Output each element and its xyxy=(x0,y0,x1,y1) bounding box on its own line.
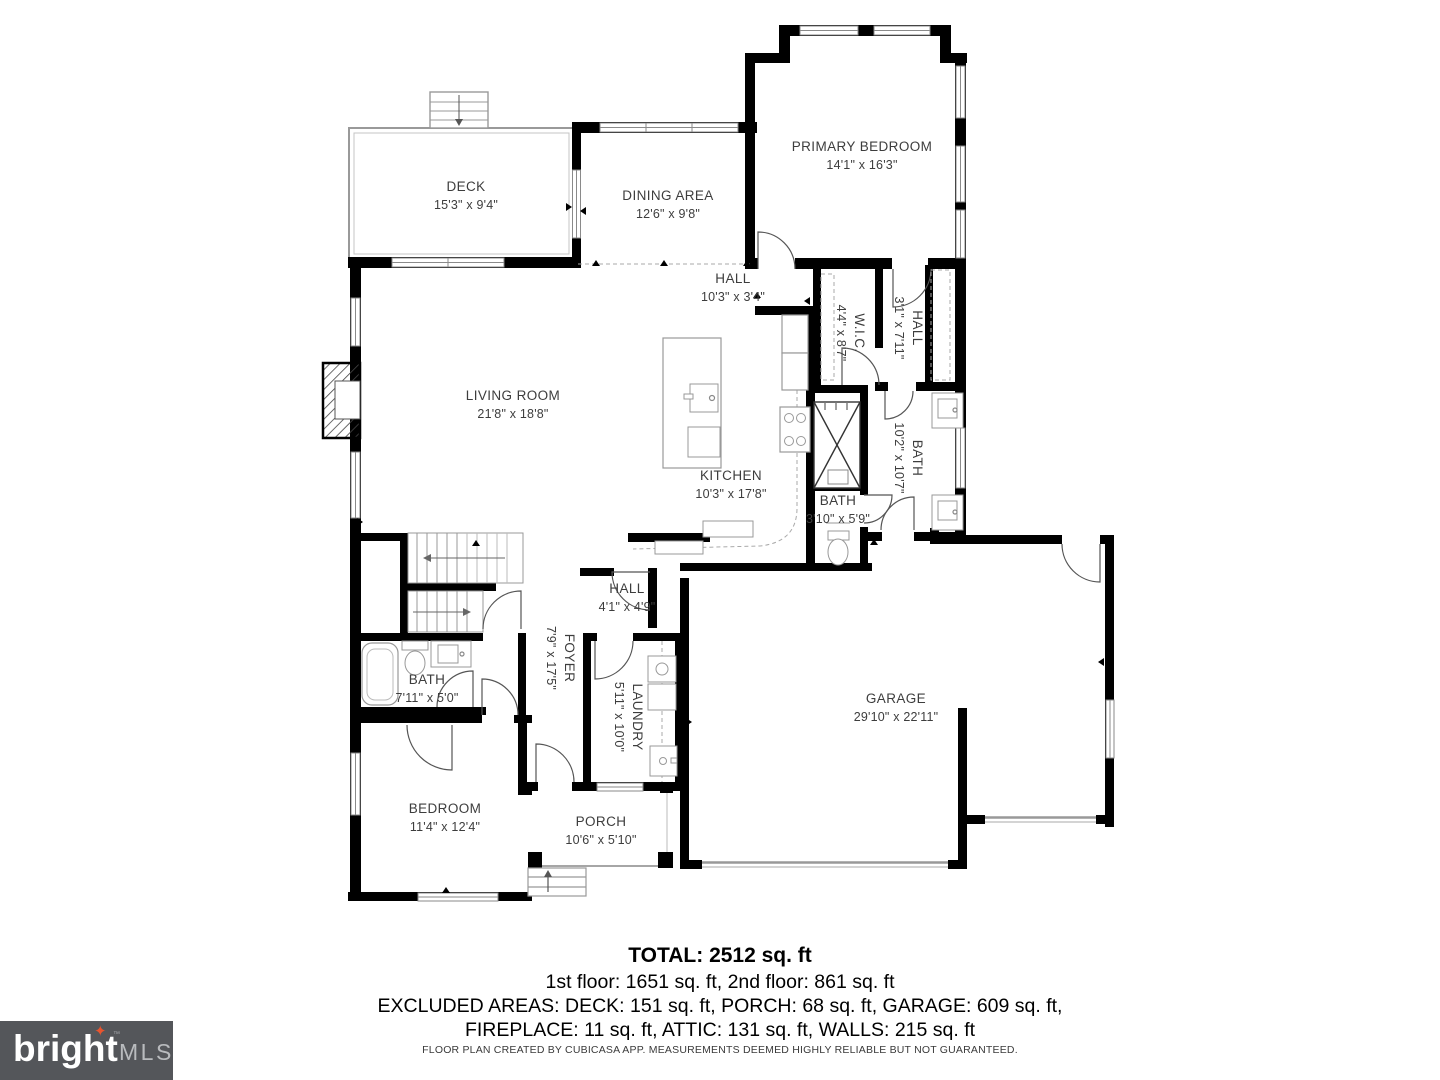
room-dims: 7'9" x 17'5" xyxy=(542,626,560,690)
area-summary: TOTAL: 2512 sq. ft 1st floor: 1651 sq. f… xyxy=(0,944,1440,1043)
fireplace xyxy=(323,363,360,438)
room-label-deck: DECK 15'3" x 9'4" xyxy=(434,178,498,214)
floor-plan-drawing xyxy=(0,0,1440,1080)
room-dims: 11'4" x 12'4" xyxy=(409,819,482,837)
room-dims: 4'4" x 8'7" xyxy=(832,305,850,362)
room-label-foyer: FOYER 7'9" x 17'5" xyxy=(542,626,578,690)
room-name: LAUNDRY xyxy=(627,682,646,752)
room-label-living-room: LIVING ROOM 21'8" x 18'8" xyxy=(466,387,560,423)
room-label-dining: DINING AREA 12'6" x 9'8" xyxy=(622,187,713,223)
room-label-porch: PORCH 10'6" x 5'10" xyxy=(565,813,636,849)
room-label-hall-lower: HALL 4'1" x 4'9" xyxy=(599,580,656,616)
room-dims: 5'11" x 10'0" xyxy=(610,682,628,752)
floor-areas: 1st floor: 1651 sq. ft, 2nd floor: 861 s… xyxy=(0,971,1440,994)
room-name: GARAGE xyxy=(854,690,939,709)
room-label-hall-upper: HALL 10'3" x 3'4" xyxy=(701,270,765,306)
logo-mls-text: MLS xyxy=(119,1039,174,1066)
room-dims: 14'1" x 16'3" xyxy=(792,157,933,175)
room-label-bath-powder: BATH 3'10" x 5'9" xyxy=(806,492,870,528)
room-name: W.I.C. xyxy=(849,305,868,362)
room-dims: 10'6" x 5'10" xyxy=(565,832,636,850)
room-dims: 29'10" x 22'11" xyxy=(854,709,939,727)
room-dims: 3'10" x 5'9" xyxy=(806,511,870,529)
room-name: HALL xyxy=(907,296,926,359)
room-name: PRIMARY BEDROOM xyxy=(792,138,933,157)
room-name: FOYER xyxy=(559,626,578,690)
logo-star-icon: ✦ xyxy=(94,1022,107,1040)
room-dims: 21'8" x 18'8" xyxy=(466,406,560,424)
floor-plan-page: DECK 15'3" x 9'4" DINING AREA 12'6" x 9'… xyxy=(0,0,1440,1080)
room-name: KITCHEN xyxy=(695,467,766,486)
room-label-wic: W.I.C. 4'4" x 8'7" xyxy=(832,305,868,362)
room-name: HALL xyxy=(599,580,656,599)
brightmls-logo: bright ✦ ™ MLS xyxy=(0,1021,173,1080)
room-name: PORCH xyxy=(565,813,636,832)
room-dims: 7'11" x 5'0" xyxy=(395,690,458,708)
total-area: TOTAL: 2512 sq. ft xyxy=(0,944,1440,968)
room-name: BEDROOM xyxy=(409,800,482,819)
room-name: BATH xyxy=(806,492,870,511)
room-dims: 4'1" x 4'9" xyxy=(599,599,656,617)
room-name: BATH xyxy=(395,671,458,690)
room-dims: 12'6" x 9'8" xyxy=(622,206,713,224)
room-label-bedroom: BEDROOM 11'4" x 12'4" xyxy=(409,800,482,836)
room-name: DECK xyxy=(434,178,498,197)
walls xyxy=(348,25,1114,901)
attic-stair xyxy=(814,402,860,488)
room-name: HALL xyxy=(701,270,765,289)
room-dims: 10'2" x 10'7" xyxy=(890,422,908,493)
room-label-primary-bedroom: PRIMARY BEDROOM 14'1" x 16'3" xyxy=(792,138,933,174)
room-label-garage: GARAGE 29'10" x 22'11" xyxy=(854,690,939,726)
logo-trademark: ™ xyxy=(113,1031,120,1038)
doors xyxy=(407,232,1100,782)
room-name: DINING AREA xyxy=(622,187,713,206)
room-name: BATH xyxy=(907,422,926,493)
excluded-areas-line2: FIREPLACE: 11 sq. ft, ATTIC: 131 sq. ft,… xyxy=(0,1019,1440,1042)
room-dims: 10'3" x 3'4" xyxy=(701,289,765,307)
windows xyxy=(351,26,1114,901)
room-label-laundry: LAUNDRY 5'11" x 10'0" xyxy=(610,682,646,752)
room-label-bath-primary: BATH 10'2" x 10'7" xyxy=(890,422,926,493)
deck-outline xyxy=(349,92,574,259)
room-label-hall-closet: HALL 3'1" x 7'11" xyxy=(890,296,926,359)
room-dims: 10'3" x 17'8" xyxy=(695,486,766,504)
room-name: LIVING ROOM xyxy=(466,387,560,406)
room-label-kitchen: KITCHEN 10'3" x 17'8" xyxy=(695,467,766,503)
room-label-bath-hall: BATH 7'11" x 5'0" xyxy=(395,671,458,707)
garage-doors xyxy=(702,815,1096,869)
excluded-areas-line1: EXCLUDED AREAS: DECK: 151 sq. ft, PORCH:… xyxy=(0,995,1440,1018)
staircase xyxy=(408,533,523,632)
disclaimer-text: FLOOR PLAN CREATED BY CUBICASA APP. MEAS… xyxy=(0,1044,1440,1056)
room-dims: 3'1" x 7'11" xyxy=(890,296,908,359)
room-dims: 15'3" x 9'4" xyxy=(434,197,498,215)
